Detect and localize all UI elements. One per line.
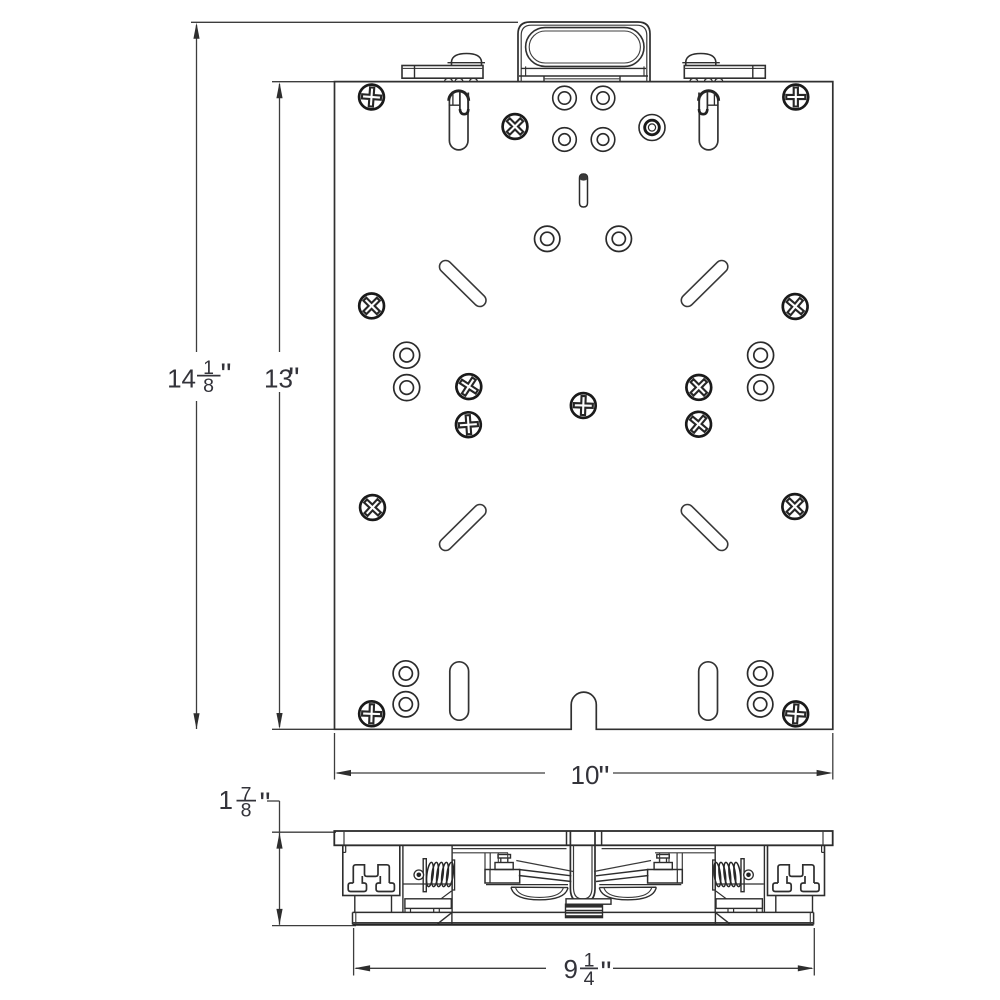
svg-text:": " bbox=[289, 361, 300, 396]
svg-text:1: 1 bbox=[219, 785, 233, 815]
svg-text:8: 8 bbox=[203, 375, 214, 397]
svg-text:": " bbox=[599, 759, 610, 794]
svg-text:": " bbox=[260, 786, 271, 821]
svg-text:": " bbox=[601, 955, 612, 990]
svg-text:8: 8 bbox=[241, 799, 252, 821]
svg-text:14: 14 bbox=[167, 363, 196, 393]
svg-text:9: 9 bbox=[564, 954, 578, 984]
svg-text:": " bbox=[221, 357, 232, 392]
svg-text:10: 10 bbox=[571, 760, 600, 790]
svg-text:4: 4 bbox=[584, 968, 595, 990]
